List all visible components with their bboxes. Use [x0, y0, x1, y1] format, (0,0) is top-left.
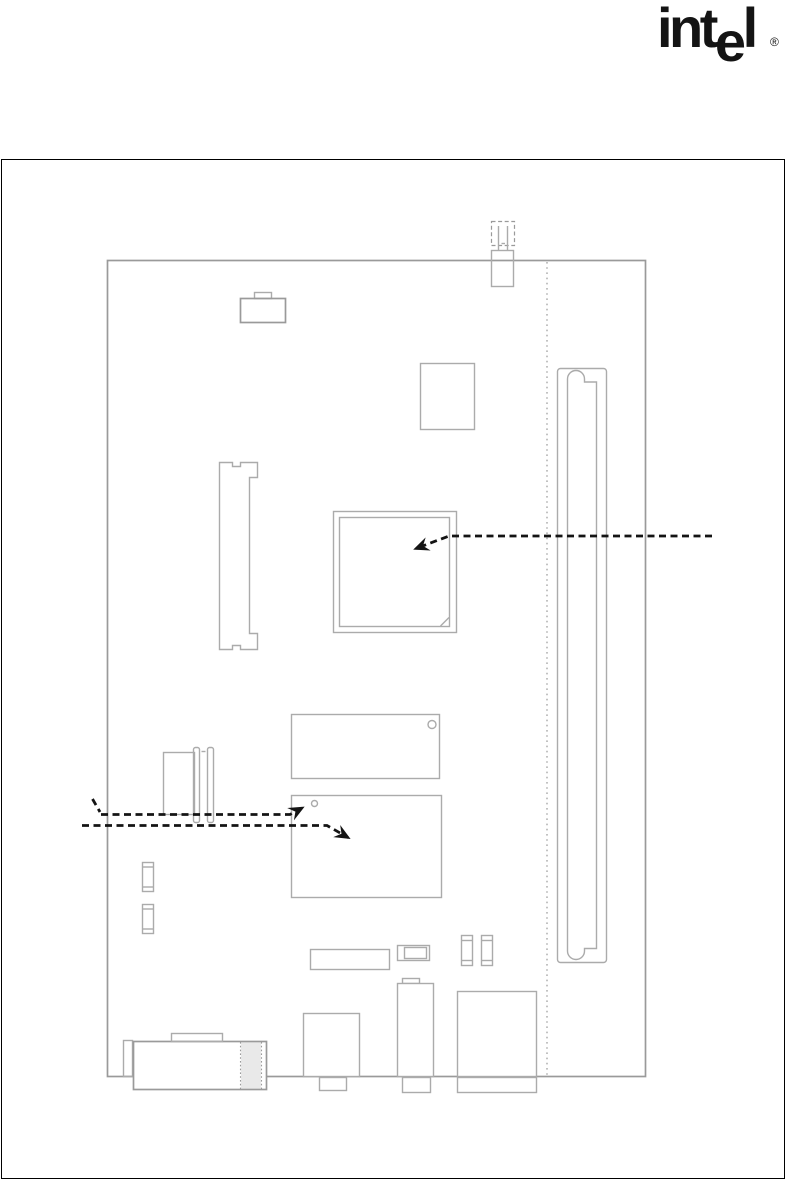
chip-corner-dot — [428, 721, 436, 729]
board-outline — [108, 261, 646, 1077]
large-square-chip-with-corner-notch — [334, 512, 457, 633]
jumper-block — [398, 946, 430, 961]
small-square-chip — [421, 364, 475, 430]
upper-mid-chip-with-dot — [292, 715, 440, 779]
lower-mid-chip-with-dot — [292, 796, 442, 898]
bottom-edge-connector-3 — [458, 992, 537, 1093]
small-jumper-2 — [482, 936, 493, 966]
processor-callout-arrow — [416, 536, 712, 549]
stacked-io-connector-with-shaded-band — [124, 1034, 267, 1090]
pin1-marker-callout-arrow — [93, 799, 303, 815]
chip-pin1-dot — [312, 801, 318, 807]
pin1-corner-notch — [441, 618, 450, 627]
top-edge-connector-with-dashed-cap — [492, 222, 515, 287]
small-capacitor-2 — [143, 905, 154, 934]
lower-chip-callout-arrow — [82, 826, 348, 838]
riser-slot — [558, 369, 607, 963]
battery-like-component — [241, 293, 286, 323]
long-low-rectangle — [311, 950, 390, 970]
small-capacitor-1 — [143, 863, 154, 892]
bottom-edge-connector-1 — [304, 1014, 360, 1091]
bottom-edge-connector-2 — [398, 979, 434, 1093]
left-header-connector — [164, 748, 214, 823]
memory-socket — [220, 463, 258, 650]
small-jumper-1 — [462, 936, 473, 966]
motherboard-diagram — [0, 0, 791, 1185]
shaded-band — [241, 1043, 261, 1089]
